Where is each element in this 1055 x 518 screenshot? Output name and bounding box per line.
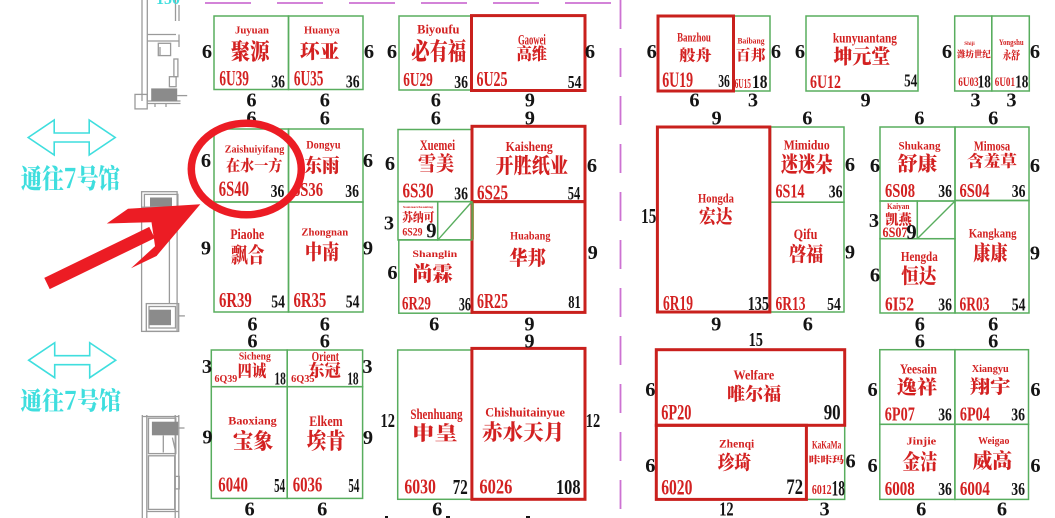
svg-text:6U01: 6U01	[995, 75, 1015, 89]
svg-text:Juyuan: Juyuan	[235, 25, 269, 37]
svg-text:3: 3	[869, 210, 879, 232]
svg-text:6026: 6026	[479, 475, 512, 499]
svg-text:Shenhuang: Shenhuang	[410, 407, 463, 423]
svg-text:108: 108	[556, 477, 581, 499]
svg-text:6: 6	[387, 262, 397, 284]
svg-text:Sunnarcleaning: Sunnarcleaning	[403, 205, 434, 209]
svg-text:9: 9	[524, 330, 534, 352]
svg-text:36: 36	[938, 181, 952, 201]
svg-text:36: 36	[346, 72, 360, 92]
svg-text:6S04: 6S04	[960, 180, 990, 202]
svg-text:9: 9	[525, 107, 535, 129]
svg-text:9: 9	[363, 427, 373, 449]
svg-text:6R29: 6R29	[402, 294, 431, 315]
svg-text:12: 12	[719, 498, 733, 518]
svg-text:9: 9	[906, 222, 916, 244]
svg-text:6: 6	[385, 153, 395, 175]
svg-text:36: 36	[345, 181, 359, 201]
svg-text:6: 6	[988, 330, 998, 352]
svg-text:6: 6	[363, 150, 373, 172]
svg-text:6: 6	[585, 41, 595, 63]
svg-text:Zaishuiyifang: Zaishuiyifang	[225, 144, 285, 156]
svg-text:Kaiyan: Kaiyan	[887, 202, 910, 211]
svg-text:Piaohe: Piaohe	[230, 227, 264, 243]
svg-text:9: 9	[711, 314, 721, 336]
svg-text:6: 6	[247, 330, 257, 352]
svg-text:3: 3	[1006, 90, 1016, 112]
svg-text:Baibang: Baibang	[738, 36, 766, 46]
svg-text:Xuemei: Xuemei	[420, 138, 455, 154]
svg-text:81: 81	[568, 292, 581, 312]
svg-text:6036: 6036	[293, 472, 323, 496]
svg-text:54: 54	[346, 292, 360, 312]
svg-text:6R03: 6R03	[960, 295, 990, 316]
svg-text:6: 6	[320, 330, 330, 352]
svg-text:6040: 6040	[218, 472, 248, 496]
svg-text:6U03: 6U03	[958, 75, 978, 89]
svg-text:6: 6	[771, 41, 781, 63]
svg-text:9: 9	[711, 107, 721, 129]
svg-text:6R13: 6R13	[776, 294, 806, 315]
svg-text:54: 54	[827, 294, 841, 314]
svg-text:6S40: 6S40	[219, 177, 249, 201]
svg-text:Yeesain: Yeesain	[900, 362, 937, 377]
svg-text:36: 36	[271, 181, 285, 201]
svg-text:18: 18	[1015, 72, 1028, 92]
svg-text:Shukang: Shukang	[899, 139, 941, 153]
svg-text:54: 54	[568, 72, 582, 92]
svg-text:Mimiduo: Mimiduo	[784, 137, 830, 152]
svg-text:Qifu: Qifu	[794, 227, 818, 243]
svg-text:9: 9	[860, 90, 870, 112]
svg-text:6: 6	[845, 451, 855, 473]
svg-text:Huanya: Huanya	[304, 25, 340, 37]
svg-text:6: 6	[244, 498, 254, 518]
svg-text:150: 150	[156, 0, 180, 8]
svg-text:3: 3	[202, 356, 212, 378]
svg-text:6S08: 6S08	[885, 180, 915, 202]
svg-text:6: 6	[647, 41, 657, 63]
svg-text:9: 9	[202, 427, 212, 449]
svg-text:Kangkang: Kangkang	[969, 226, 1017, 240]
svg-text:6S14: 6S14	[776, 181, 805, 202]
svg-text:Shanglin: Shanglin	[412, 249, 458, 260]
svg-text:6: 6	[870, 155, 880, 177]
svg-text:9: 9	[588, 242, 598, 264]
svg-text:36: 36	[938, 404, 952, 424]
svg-text:6: 6	[202, 41, 212, 63]
svg-text:Hongda: Hongda	[698, 191, 734, 206]
svg-text:6: 6	[867, 379, 877, 401]
svg-text:6: 6	[867, 455, 877, 477]
svg-text:6: 6	[587, 155, 597, 177]
svg-text:6: 6	[432, 498, 442, 518]
svg-text:6: 6	[645, 379, 655, 401]
svg-text:6U12: 6U12	[810, 72, 841, 93]
svg-text:Banzhou: Banzhou	[677, 31, 711, 45]
svg-text:9: 9	[1030, 243, 1040, 265]
svg-text:6: 6	[645, 455, 655, 477]
svg-text:3: 3	[748, 90, 758, 112]
svg-text:3: 3	[384, 213, 394, 235]
svg-text:Zhongnan: Zhongnan	[301, 227, 348, 238]
svg-text:Welfare: Welfare	[734, 367, 775, 382]
svg-text:36: 36	[1011, 404, 1025, 424]
svg-text:Mimosa: Mimosa	[974, 139, 1010, 154]
svg-text:6P20: 6P20	[661, 401, 691, 425]
svg-text:6: 6	[942, 41, 952, 63]
svg-text:3: 3	[362, 356, 372, 378]
svg-text:36: 36	[1011, 479, 1025, 499]
svg-text:72: 72	[453, 477, 468, 499]
svg-text:6: 6	[802, 107, 812, 129]
svg-text:6: 6	[916, 498, 926, 518]
svg-text:6R19: 6R19	[663, 291, 693, 315]
svg-text:6008: 6008	[885, 478, 915, 500]
svg-text:54: 54	[1012, 295, 1026, 315]
svg-text:9: 9	[201, 238, 211, 260]
svg-text:36: 36	[1012, 181, 1026, 201]
svg-text:6P07: 6P07	[885, 403, 915, 425]
svg-text:36: 36	[938, 479, 952, 499]
svg-text:6: 6	[870, 265, 880, 287]
svg-text:15: 15	[641, 204, 656, 228]
svg-text:Kaisheng: Kaisheng	[506, 139, 553, 154]
svg-text:6U35: 6U35	[294, 67, 324, 91]
svg-text:12: 12	[586, 410, 600, 432]
svg-text:9: 9	[845, 242, 855, 264]
svg-text:18: 18	[832, 475, 845, 500]
svg-text:6U29: 6U29	[403, 69, 433, 91]
svg-text:6Q35: 6Q35	[291, 373, 315, 385]
svg-text:Biyoufu: Biyoufu	[417, 22, 459, 36]
svg-text:18: 18	[347, 368, 359, 388]
svg-text:36: 36	[459, 294, 471, 315]
svg-text:6: 6	[429, 314, 439, 336]
svg-text:KaKaMa: KaKaMa	[812, 440, 842, 452]
svg-text:72: 72	[786, 474, 803, 499]
svg-text:6: 6	[997, 498, 1007, 518]
svg-text:15: 15	[749, 329, 763, 351]
svg-text:6004: 6004	[960, 478, 990, 500]
svg-text:9: 9	[426, 221, 436, 243]
svg-text:6030: 6030	[404, 475, 436, 499]
svg-text:3: 3	[819, 498, 829, 518]
svg-text:6: 6	[1030, 41, 1040, 63]
svg-text:36: 36	[454, 183, 468, 203]
svg-text:36: 36	[829, 181, 843, 201]
svg-text:9: 9	[363, 238, 373, 260]
svg-text:6: 6	[1030, 155, 1040, 177]
svg-text:6: 6	[1030, 455, 1040, 477]
svg-text:6S30: 6S30	[403, 179, 434, 203]
svg-text:6: 6	[431, 107, 441, 129]
svg-text:6: 6	[689, 90, 699, 112]
svg-text:Hengda: Hengda	[901, 249, 938, 264]
svg-text:6: 6	[387, 41, 397, 63]
svg-text:6I52: 6I52	[885, 295, 914, 316]
svg-text:135: 135	[748, 293, 769, 315]
svg-text:6R39: 6R39	[219, 289, 252, 312]
svg-text:54: 54	[904, 71, 917, 91]
svg-text:6: 6	[988, 107, 998, 129]
svg-text:90: 90	[824, 400, 841, 425]
svg-text:18: 18	[274, 368, 286, 388]
svg-text:54: 54	[271, 292, 285, 312]
svg-text:Elkem: Elkem	[309, 414, 342, 430]
svg-text:Baoxiang: Baoxiang	[228, 413, 277, 427]
svg-text:12: 12	[381, 410, 395, 432]
svg-text:6R25: 6R25	[477, 289, 508, 313]
svg-text:6: 6	[201, 150, 211, 172]
svg-text:6P04: 6P04	[960, 403, 990, 425]
svg-text:Shiji: Shiji	[964, 42, 975, 47]
svg-text:6Q39: 6Q39	[215, 373, 238, 385]
svg-text:6: 6	[795, 41, 805, 63]
svg-text:6: 6	[364, 41, 374, 63]
svg-text:6: 6	[1030, 379, 1040, 401]
svg-text:6012: 6012	[812, 483, 832, 498]
svg-text:Xiangyu: Xiangyu	[972, 363, 1009, 375]
svg-text:6: 6	[317, 498, 327, 518]
svg-text:6U19: 6U19	[662, 67, 693, 92]
svg-text:6020: 6020	[661, 475, 692, 500]
svg-text:6: 6	[915, 330, 925, 352]
svg-text:6U39: 6U39	[219, 67, 249, 91]
svg-text:Weigao: Weigao	[978, 436, 1009, 447]
svg-text:6: 6	[320, 107, 330, 129]
svg-text:kunyuantang: kunyuantang	[833, 30, 897, 45]
svg-text:6: 6	[803, 314, 813, 336]
svg-text:3: 3	[970, 90, 980, 112]
svg-text:54: 54	[348, 475, 359, 497]
svg-text:36: 36	[454, 72, 468, 92]
svg-text:Dongyu: Dongyu	[306, 140, 340, 152]
svg-text:36: 36	[271, 72, 285, 92]
svg-text:Chishuitainyue: Chishuitainyue	[485, 406, 565, 420]
svg-text:6: 6	[845, 154, 855, 176]
svg-text:36: 36	[718, 71, 730, 91]
svg-text:Yongshu: Yongshu	[999, 38, 1024, 47]
svg-text:6S29: 6S29	[402, 227, 423, 239]
svg-text:Zhenqi: Zhenqi	[719, 438, 755, 451]
svg-text:54: 54	[274, 475, 285, 497]
svg-text:6U25: 6U25	[477, 67, 508, 91]
svg-text:36: 36	[938, 295, 952, 315]
svg-text:6: 6	[914, 107, 924, 129]
svg-text:Jinjie: Jinjie	[906, 436, 936, 447]
svg-text:6R35: 6R35	[294, 289, 327, 312]
svg-text:Huabang: Huabang	[510, 231, 551, 243]
